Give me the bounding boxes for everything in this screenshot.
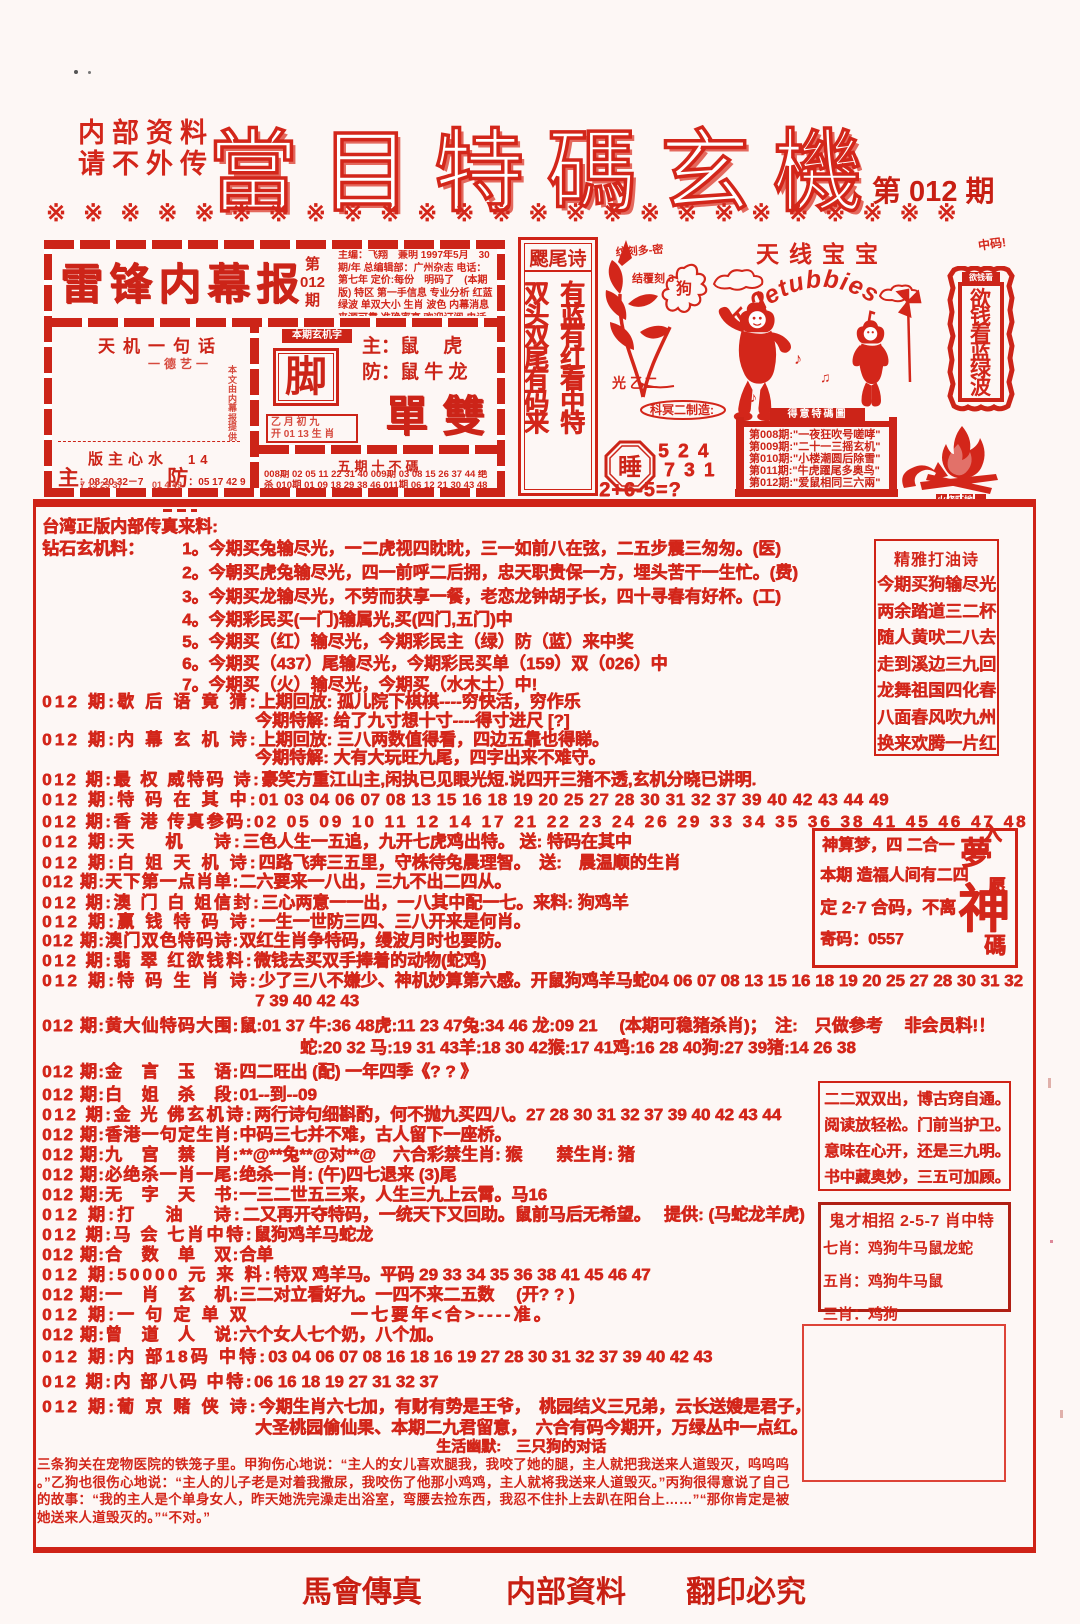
svg-text:天线宝宝: 天线宝宝 — [756, 241, 888, 267]
svg-text:♪: ♪ — [794, 351, 802, 368]
svg-text:♪: ♪ — [750, 389, 757, 405]
svg-text:睡: 睡 — [618, 454, 642, 481]
svg-text:欲钱看: 欲钱看 — [968, 272, 993, 282]
svg-text:♫: ♫ — [820, 369, 831, 385]
svg-text:狗: 狗 — [676, 279, 692, 298]
svg-text:光 乙二: 光 乙二 — [611, 375, 658, 391]
svg-text:科冥二制造:: 科冥二制造: — [650, 402, 714, 417]
